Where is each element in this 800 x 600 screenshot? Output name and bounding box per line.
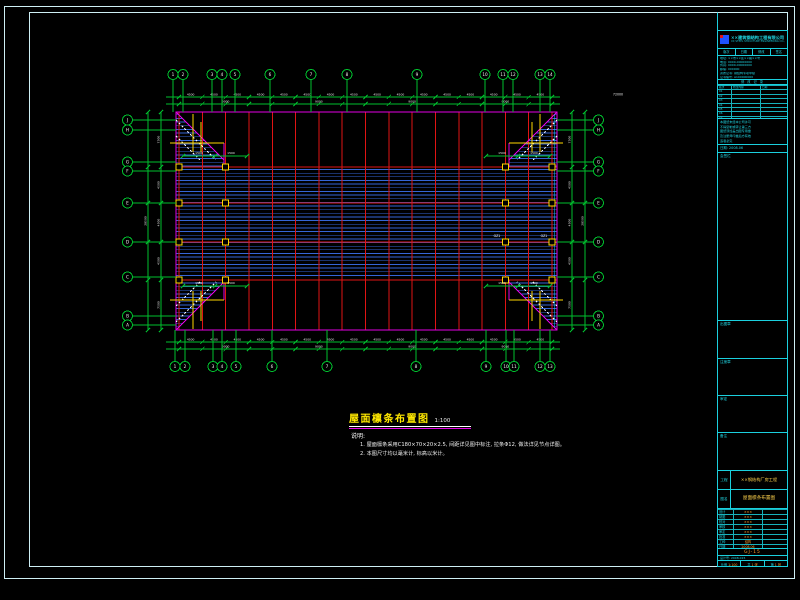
revision-header-cell: 修改 xyxy=(752,49,770,55)
svg-text:7500: 7500 xyxy=(156,301,160,309)
svg-text:9: 9 xyxy=(416,72,419,77)
svg-text:B: B xyxy=(126,314,129,319)
drawing-title-text: 屋面檩条布置图 xyxy=(349,414,430,425)
stamp-box: 出图章 xyxy=(718,320,787,358)
corner-leaders xyxy=(170,114,563,329)
title-underline-magenta xyxy=(349,428,471,429)
svg-text:6: 6 xyxy=(269,72,272,77)
revision-header-cell: 日期 xyxy=(735,49,753,55)
svg-text:C: C xyxy=(597,275,600,280)
svg-text:4500: 4500 xyxy=(233,337,241,341)
svg-text:4500: 4500 xyxy=(257,92,265,96)
svg-text:4500: 4500 xyxy=(490,92,498,96)
svg-text:14: 14 xyxy=(547,72,553,77)
svg-text:13: 13 xyxy=(537,72,543,77)
svg-text:4500: 4500 xyxy=(397,92,405,96)
svg-text:1500: 1500 xyxy=(227,151,235,155)
scale-row: 比例1:100共1 张第1 张 xyxy=(718,560,787,567)
svg-text:4500: 4500 xyxy=(156,219,160,227)
svg-text:2: 2 xyxy=(182,72,185,77)
svg-text:3: 3 xyxy=(212,364,215,369)
svg-text:1500: 1500 xyxy=(498,151,506,155)
svg-text:7500: 7500 xyxy=(156,136,160,144)
svg-text:C: C xyxy=(126,275,129,280)
svg-text:6: 6 xyxy=(271,364,274,369)
certificate-line: 违者必究 xyxy=(720,139,785,144)
revision-table: 版次修改内容日期01020304050607 xyxy=(718,84,787,118)
svg-text:4500: 4500 xyxy=(156,181,160,189)
svg-text:4500: 4500 xyxy=(420,337,428,341)
svg-text:4500: 4500 xyxy=(327,92,335,96)
revision-table-row: 07 xyxy=(718,116,787,118)
svg-text:7: 7 xyxy=(310,72,313,77)
stamp-box: 审定 xyxy=(718,395,787,432)
stamp-box-label: 审定 xyxy=(718,396,787,402)
svg-text:4500: 4500 xyxy=(513,92,521,96)
svg-text:2: 2 xyxy=(184,364,187,369)
company-info-lines: 地址: ××市××区××路××号电话: 0000-00000000传真: 000… xyxy=(718,55,787,79)
date-line: 日期: 2008.06 xyxy=(718,144,787,152)
svg-text:H: H xyxy=(126,128,129,133)
svg-text:4500: 4500 xyxy=(397,337,405,341)
svg-text:1500: 1500 xyxy=(195,281,203,285)
svg-text:B: B xyxy=(597,314,600,319)
svg-text:4500: 4500 xyxy=(467,337,475,341)
svg-text:J: J xyxy=(126,118,128,123)
svg-text:4500: 4500 xyxy=(303,92,311,96)
svg-text:4500: 4500 xyxy=(373,337,381,341)
svg-text:9000: 9000 xyxy=(408,344,416,348)
svg-text:9000: 9000 xyxy=(502,344,510,348)
drawing-name-row: 图名 屋面檩条布置图 xyxy=(718,489,787,508)
svg-text:1500: 1500 xyxy=(530,151,538,155)
company-logo-icon xyxy=(720,35,729,44)
svg-text:28500: 28500 xyxy=(581,216,585,226)
project-value: ××钢结构厂房工程 xyxy=(731,471,787,489)
cad-sheet-svg: GZ1GZ14500450045004500450045004500450045… xyxy=(0,0,800,600)
svg-text:GZ1: GZ1 xyxy=(494,234,501,238)
scale-cell-label: 共 xyxy=(747,562,750,567)
field-value: 2008.06 xyxy=(733,545,763,548)
drawing-number: GJ-15 xyxy=(718,548,787,555)
svg-text:5: 5 xyxy=(235,364,238,369)
svg-text:28500: 28500 xyxy=(144,216,148,226)
svg-text:G: G xyxy=(126,160,129,165)
svg-text:GZ1: GZ1 xyxy=(541,234,548,238)
scale-cell-label: 第 xyxy=(771,562,774,567)
stamp-box-label: 出图章 xyxy=(718,321,787,327)
svg-text:1: 1 xyxy=(174,364,177,369)
revision-cell: 07 xyxy=(718,117,732,118)
svg-text:4500: 4500 xyxy=(567,181,571,189)
svg-text:3: 3 xyxy=(211,72,214,77)
svg-text:1500: 1500 xyxy=(195,151,203,155)
drawing-scale: 1:100 xyxy=(435,418,451,424)
svg-text:4500: 4500 xyxy=(420,92,428,96)
svg-text:72000: 72000 xyxy=(613,92,623,96)
svg-text:12: 12 xyxy=(537,364,543,369)
note-line: 2. 本图尺寸均以毫米计, 标高以米计。 xyxy=(360,450,565,459)
svg-text:5: 5 xyxy=(234,72,237,77)
certificate-lines: 本图纸未经本公司许可不得复制或转让第三方图纸须加盖出图专用章及注册师印章后方有效… xyxy=(718,118,787,144)
svg-text:4500: 4500 xyxy=(210,92,218,96)
svg-text:4500: 4500 xyxy=(490,337,498,341)
svg-text:4500: 4500 xyxy=(467,92,475,96)
scale-cell-value: 1:100 xyxy=(728,563,737,567)
field-extra xyxy=(763,545,787,548)
svg-text:E: E xyxy=(126,201,129,206)
stamp-box-label: 备注 xyxy=(718,433,787,439)
svg-text:9000: 9000 xyxy=(222,344,230,348)
scale-cell-value: 1 张 xyxy=(751,562,757,567)
svg-text:4500: 4500 xyxy=(443,92,451,96)
drawing-name-label: 图名 xyxy=(718,490,731,508)
title-underline-white xyxy=(349,426,471,427)
revision-header-row: 版次日期修改签名 xyxy=(718,48,787,55)
svg-text:4500: 4500 xyxy=(443,337,451,341)
svg-text:E: E xyxy=(597,201,600,206)
svg-text:4500: 4500 xyxy=(156,257,160,265)
svg-text:9: 9 xyxy=(485,364,488,369)
scale-cell: 共1 张 xyxy=(740,561,763,567)
revision-header-cell: 签名 xyxy=(770,49,788,55)
svg-text:G: G xyxy=(597,160,600,165)
svg-text:4500: 4500 xyxy=(373,92,381,96)
company-header: ××建筑钢结构工程有限公司 XX STEEL STRUCTURE ENGINEE… xyxy=(718,31,787,48)
stamp-boxes: 会签栏出图章注册章审定备注 xyxy=(718,152,787,470)
svg-text:A: A xyxy=(597,323,600,328)
stamp-box: 备注 xyxy=(718,432,787,470)
svg-text:1500: 1500 xyxy=(530,281,538,285)
svg-text:4500: 4500 xyxy=(210,337,218,341)
svg-text:J: J xyxy=(597,118,599,123)
signature-fields: 设计×××制图×××校对×××审核×××审定×××批准×××工种结构日期2008… xyxy=(718,508,787,548)
note-line: 1. 屋面檩条采用C180×70×20×2.5, 间距详见图中标注, 拉条Φ12… xyxy=(360,441,565,450)
svg-text:4: 4 xyxy=(221,364,224,369)
svg-text:12: 12 xyxy=(510,72,516,77)
project-row: 工程 ××钢结构厂房工程 xyxy=(718,470,787,489)
scale-cell-value: 1 张 xyxy=(775,562,781,567)
notes-label: 说明: xyxy=(351,431,365,440)
svg-text:7500: 7500 xyxy=(567,301,571,309)
svg-text:9000: 9000 xyxy=(408,99,416,103)
svg-text:4500: 4500 xyxy=(350,92,358,96)
svg-text:4500: 4500 xyxy=(187,92,195,96)
company-name-en: XX STEEL STRUCTURE ENGINEERING CO.,LTD. xyxy=(731,40,785,43)
svg-text:9000: 9000 xyxy=(315,99,323,103)
svg-text:4500: 4500 xyxy=(567,257,571,265)
svg-text:4500: 4500 xyxy=(350,337,358,341)
svg-text:13: 13 xyxy=(547,364,553,369)
revision-cell xyxy=(732,117,761,118)
svg-text:1500: 1500 xyxy=(227,281,235,285)
svg-text:H: H xyxy=(597,128,600,133)
svg-text:4500: 4500 xyxy=(303,337,311,341)
svg-text:1: 1 xyxy=(172,72,175,77)
svg-text:4: 4 xyxy=(221,72,224,77)
notes-list: 1. 屋面檩条采用C180×70×20×2.5, 间距详见图中标注, 拉条Φ12… xyxy=(360,441,565,459)
svg-text:4500: 4500 xyxy=(257,337,265,341)
svg-text:11: 11 xyxy=(511,364,517,369)
revision-header-cell: 版次 xyxy=(718,49,735,55)
scale-cell: 第1 张 xyxy=(764,561,787,567)
title-block: ××建筑钢结构工程有限公司 XX STEEL STRUCTURE ENGINEE… xyxy=(717,30,788,567)
svg-text:4500: 4500 xyxy=(567,219,571,227)
svg-text:10: 10 xyxy=(482,72,488,77)
svg-text:11: 11 xyxy=(500,72,506,77)
stamp-box-label: 会签栏 xyxy=(718,153,787,159)
svg-text:10: 10 xyxy=(503,364,509,369)
drawing-name-value: 屋面檩条布置图 xyxy=(731,490,787,508)
scale-cell-label: 比例 xyxy=(721,562,727,567)
svg-text:D: D xyxy=(126,240,129,245)
svg-text:8: 8 xyxy=(415,364,418,369)
field-label: 日期 xyxy=(718,545,733,548)
purlin-lines xyxy=(176,115,557,327)
svg-text:A: A xyxy=(126,323,129,328)
svg-text:7: 7 xyxy=(326,364,329,369)
drawing-title: 屋面檩条布置图1:100 xyxy=(349,410,450,425)
cad-sheet: GZ1GZ14500450045004500450045004500450045… xyxy=(0,0,800,600)
svg-text:D: D xyxy=(597,240,600,245)
svg-text:9000: 9000 xyxy=(315,344,323,348)
svg-text:1500: 1500 xyxy=(498,281,506,285)
signature-field-row: 日期2008.06 xyxy=(718,544,787,548)
revision-cell xyxy=(761,117,787,118)
svg-text:9000: 9000 xyxy=(222,99,230,103)
stamp-box: 注册章 xyxy=(718,358,787,395)
svg-text:8: 8 xyxy=(346,72,349,77)
scale-cell: 比例1:100 xyxy=(718,561,740,567)
project-label: 工程 xyxy=(718,471,731,489)
svg-text:4500: 4500 xyxy=(280,92,288,96)
svg-text:7500: 7500 xyxy=(567,136,571,144)
stamp-box-label: 注册章 xyxy=(718,359,787,365)
svg-text:4500: 4500 xyxy=(280,337,288,341)
svg-text:4500: 4500 xyxy=(327,337,335,341)
stamp-box: 会签栏 xyxy=(718,152,787,320)
svg-text:4500: 4500 xyxy=(187,337,195,341)
